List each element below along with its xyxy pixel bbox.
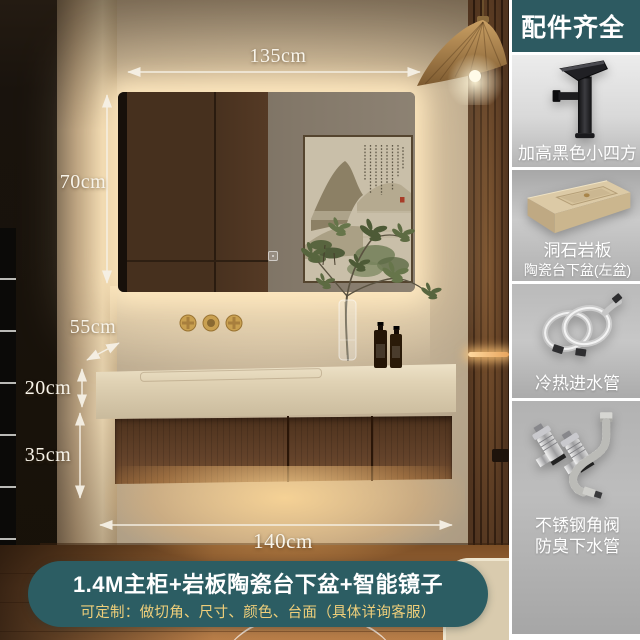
dimension-vanity-width: 140cm [237, 529, 329, 554]
accessory-tile-drain: 不锈钢角阀 防臭下水管 [512, 401, 640, 634]
dimension-mirror-height: 70cm [56, 171, 110, 194]
accessory-tile-basin: 洞石岩板 陶瓷台下盆(左盆) [512, 170, 640, 281]
rattan-pendant-lamp [405, 0, 509, 105]
accessory-tile-hoses: 冷热进水管 [512, 284, 640, 398]
customization-note: 可定制：做切角、尺寸、颜色、台面（具体详询客服） [80, 601, 435, 622]
dimension-mirror-width: 135cm [230, 45, 326, 68]
accessory-labels: 洞石岩板 陶瓷台下盆(左盆) [524, 240, 631, 279]
dimension-counter-height: 20cm [22, 377, 74, 400]
gold-faucet-handles [178, 313, 244, 337]
black-faucet-icon [538, 55, 618, 141]
drain-valve-icon [522, 407, 634, 511]
accessory-label: 冷热进水管 [535, 373, 620, 394]
water-hoses-icon [523, 284, 633, 368]
accessory-labels: 不锈钢角阀 防臭下水管 [535, 515, 620, 558]
panel-handle [492, 449, 509, 462]
mirror-touch-sensor-icon [268, 251, 278, 261]
stone-basin-icon [520, 173, 636, 237]
plant-in-glass-vase [295, 200, 445, 372]
accessory-label: 不锈钢角阀 [535, 515, 620, 536]
shelf-light [468, 352, 509, 357]
accessory-label: 加高黑色小四方 [518, 143, 637, 164]
dimension-cabinet-height: 35cm [22, 444, 74, 467]
accessories-sidebar: 配件齐全 加高黑色小四方 [509, 0, 640, 640]
accessory-label: 洞石岩板 [524, 240, 631, 261]
wardrobe-seam [214, 92, 216, 292]
dimension-counter-depth: 55cm [64, 316, 122, 339]
accessories-header: 配件齐全 [512, 0, 640, 52]
accessory-label-2: 防臭下水管 [535, 536, 620, 557]
bathroom-scene: 135cm 70cm 55cm 20cm 35cm 140cm 1.4M主柜+岩… [0, 0, 509, 640]
mirror-reflection-wardrobe [118, 92, 268, 292]
accessory-tile-faucet: 加高黑色小四方 [512, 55, 640, 167]
product-title-banner: 1.4M主柜+岩板陶瓷台下盆+智能镜子 可定制：做切角、尺寸、颜色、台面（具体详… [28, 561, 488, 627]
accessory-label-2: 陶瓷台下盆(左盆) [524, 262, 631, 280]
wardrobe-drawer-line [127, 260, 268, 262]
product-title: 1.4M主柜+岩板陶瓷台下盆+智能镜子 [73, 567, 443, 599]
vanity-product-image: 135cm 70cm 55cm 20cm 35cm 140cm 1.4M主柜+岩… [0, 0, 640, 640]
